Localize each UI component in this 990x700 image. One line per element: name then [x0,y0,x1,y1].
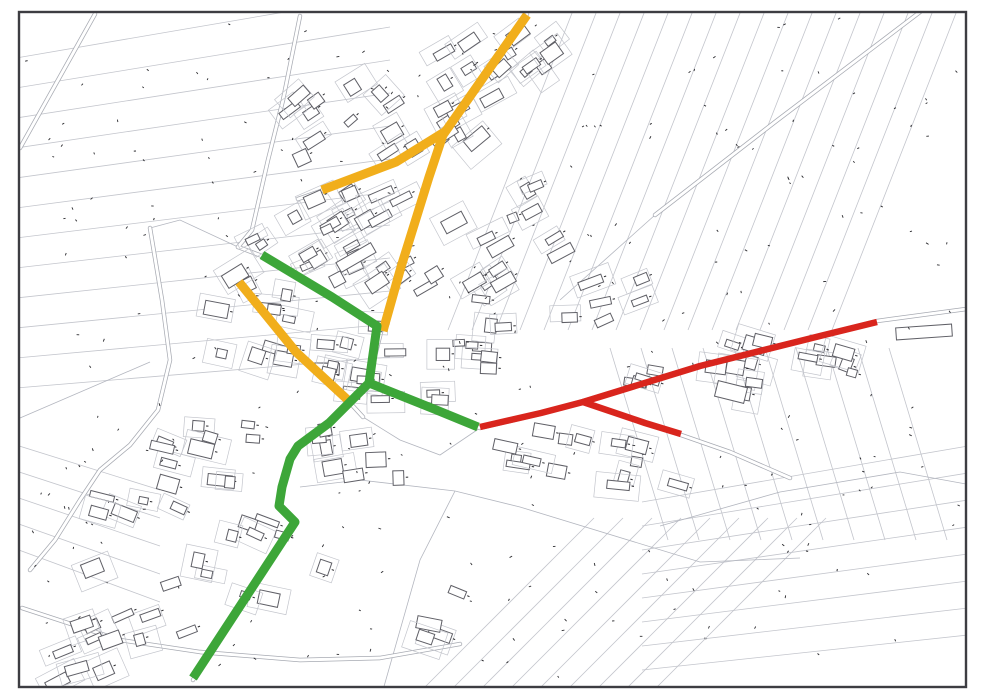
cadastral-map-canvas [0,0,990,700]
map-document-page [0,0,990,700]
